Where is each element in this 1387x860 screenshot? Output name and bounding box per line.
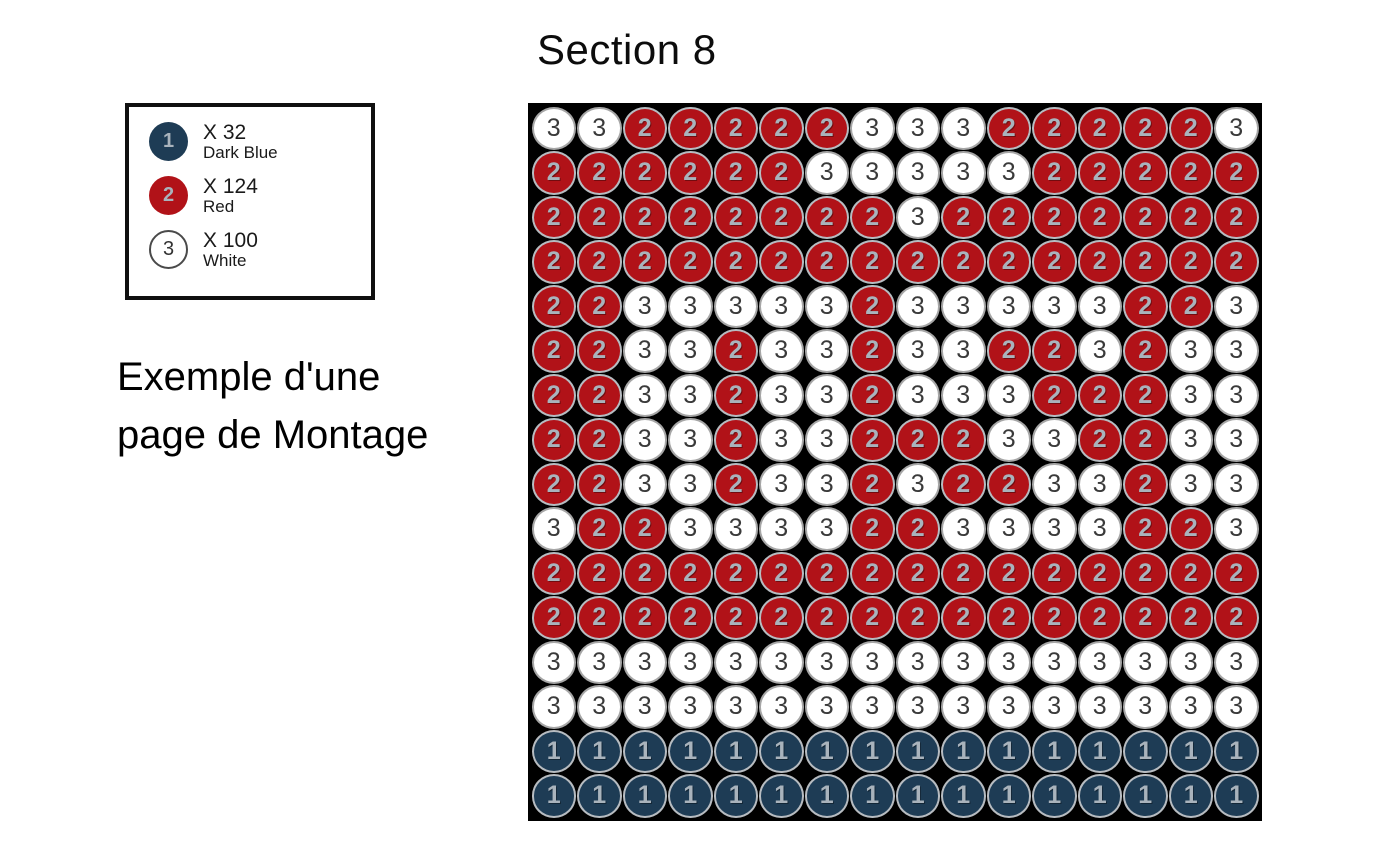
bead: 1 xyxy=(1123,730,1168,774)
bead: 2 xyxy=(850,463,895,507)
bead: 2 xyxy=(714,418,759,462)
bead: 3 xyxy=(714,641,759,685)
bead: 2 xyxy=(1032,329,1077,373)
bead: 2 xyxy=(805,596,850,640)
bead: 3 xyxy=(759,507,804,551)
bead: 1 xyxy=(1169,774,1214,818)
bead: 2 xyxy=(987,552,1032,596)
bead: 3 xyxy=(668,374,713,418)
bead: 2 xyxy=(1078,151,1123,195)
bead: 2 xyxy=(896,418,941,462)
bead: 1 xyxy=(805,730,850,774)
bead: 3 xyxy=(577,685,622,729)
bead: 2 xyxy=(532,196,577,240)
bead: 2 xyxy=(1123,285,1168,329)
bead: 2 xyxy=(577,329,622,373)
bead: 2 xyxy=(1078,196,1123,240)
bead: 3 xyxy=(850,107,895,151)
bead: 3 xyxy=(896,151,941,195)
bead: 2 xyxy=(1214,240,1259,284)
bead: 2 xyxy=(577,463,622,507)
bead: 3 xyxy=(1214,418,1259,462)
caption: Exemple d'une page de Montage xyxy=(117,348,428,464)
bead: 3 xyxy=(759,374,804,418)
bead: 3 xyxy=(805,374,850,418)
bead: 2 xyxy=(1123,507,1168,551)
bead: 1 xyxy=(1214,730,1259,774)
bead: 2 xyxy=(987,196,1032,240)
bead: 3 xyxy=(987,374,1032,418)
bead: 2 xyxy=(1169,285,1214,329)
bead: 3 xyxy=(850,685,895,729)
bead: 2 xyxy=(850,196,895,240)
bead-grid: 3322222333222223222222333332222222222222… xyxy=(528,103,1262,821)
bead: 2 xyxy=(668,151,713,195)
bead: 3 xyxy=(1214,374,1259,418)
bead: 3 xyxy=(668,507,713,551)
bead: 3 xyxy=(623,418,668,462)
bead: 2 xyxy=(805,552,850,596)
bead: 1 xyxy=(532,730,577,774)
bead: 2 xyxy=(1123,374,1168,418)
bead: 3 xyxy=(1123,685,1168,729)
legend-text: X 124 Red xyxy=(203,175,258,217)
bead: 2 xyxy=(759,240,804,284)
bead: 2 xyxy=(759,552,804,596)
bead: 1 xyxy=(714,774,759,818)
bead: 1 xyxy=(1214,774,1259,818)
bead: 2 xyxy=(1169,151,1214,195)
legend-count: X 32 xyxy=(203,121,278,144)
bead: 2 xyxy=(1078,552,1123,596)
bead: 2 xyxy=(941,240,986,284)
bead: 3 xyxy=(532,641,577,685)
bead: 3 xyxy=(714,685,759,729)
bead: 3 xyxy=(1169,329,1214,373)
page: Section 8 1 X 32 Dark Blue 2 X 124 Red 3… xyxy=(0,0,1387,860)
bead: 3 xyxy=(941,641,986,685)
bead: 2 xyxy=(850,329,895,373)
bead: 3 xyxy=(941,151,986,195)
bead: 3 xyxy=(1078,329,1123,373)
bead: 2 xyxy=(850,552,895,596)
bead: 3 xyxy=(623,685,668,729)
bead: 2 xyxy=(1032,552,1077,596)
bead: 3 xyxy=(1032,507,1077,551)
bead: 3 xyxy=(1214,463,1259,507)
bead: 2 xyxy=(668,596,713,640)
bead: 2 xyxy=(623,240,668,284)
bead: 3 xyxy=(1123,641,1168,685)
bead: 1 xyxy=(759,730,804,774)
bead: 2 xyxy=(1078,596,1123,640)
bead: 1 xyxy=(714,730,759,774)
bead: 3 xyxy=(759,463,804,507)
bead: 2 xyxy=(1214,196,1259,240)
bead: 3 xyxy=(759,418,804,462)
bead: 2 xyxy=(532,240,577,284)
bead: 3 xyxy=(1169,685,1214,729)
bead: 2 xyxy=(759,107,804,151)
bead: 2 xyxy=(1123,107,1168,151)
bead: 3 xyxy=(805,685,850,729)
legend-count: X 100 xyxy=(203,229,258,252)
bead: 3 xyxy=(1032,418,1077,462)
bead: 3 xyxy=(987,285,1032,329)
bead: 3 xyxy=(805,641,850,685)
bead: 3 xyxy=(1169,374,1214,418)
bead: 3 xyxy=(668,418,713,462)
bead: 3 xyxy=(1169,641,1214,685)
bead: 3 xyxy=(941,507,986,551)
bead: 1 xyxy=(1123,774,1168,818)
bead: 3 xyxy=(896,285,941,329)
bead: 2 xyxy=(759,196,804,240)
bead: 1 xyxy=(532,774,577,818)
bead: 2 xyxy=(577,418,622,462)
bead: 2 xyxy=(714,240,759,284)
legend-item-dark-blue: 1 X 32 Dark Blue xyxy=(149,121,371,163)
legend-item-white: 3 X 100 White xyxy=(149,229,371,271)
bead: 3 xyxy=(714,507,759,551)
bead: 2 xyxy=(1214,596,1259,640)
bead: 2 xyxy=(1123,151,1168,195)
bead: 1 xyxy=(987,774,1032,818)
bead: 2 xyxy=(759,151,804,195)
bead: 3 xyxy=(759,285,804,329)
bead: 2 xyxy=(577,552,622,596)
bead: 3 xyxy=(896,196,941,240)
bead: 3 xyxy=(759,685,804,729)
bead: 3 xyxy=(623,285,668,329)
bead: 2 xyxy=(805,107,850,151)
bead: 2 xyxy=(714,151,759,195)
bead: 1 xyxy=(577,774,622,818)
bead: 2 xyxy=(623,507,668,551)
bead: 3 xyxy=(623,641,668,685)
bead: 2 xyxy=(896,240,941,284)
bead: 3 xyxy=(577,107,622,151)
bead: 2 xyxy=(577,596,622,640)
bead: 3 xyxy=(1214,507,1259,551)
bead: 3 xyxy=(941,374,986,418)
bead: 1 xyxy=(850,774,895,818)
bead: 3 xyxy=(805,151,850,195)
bead: 2 xyxy=(850,285,895,329)
bead: 1 xyxy=(896,774,941,818)
red-bead-icon: 2 xyxy=(149,176,188,215)
bead: 2 xyxy=(714,374,759,418)
bead: 3 xyxy=(896,685,941,729)
bead: 3 xyxy=(532,507,577,551)
bead: 3 xyxy=(668,641,713,685)
bead: 2 xyxy=(577,507,622,551)
bead: 3 xyxy=(805,507,850,551)
bead: 3 xyxy=(623,374,668,418)
bead: 3 xyxy=(987,641,1032,685)
bead: 2 xyxy=(623,596,668,640)
bead: 2 xyxy=(532,329,577,373)
bead: 3 xyxy=(714,285,759,329)
bead: 3 xyxy=(532,107,577,151)
bead: 3 xyxy=(941,685,986,729)
bead: 2 xyxy=(1169,596,1214,640)
bead: 3 xyxy=(896,641,941,685)
bead: 2 xyxy=(805,196,850,240)
bead: 2 xyxy=(941,196,986,240)
legend-color-name: White xyxy=(203,252,258,271)
bead: 3 xyxy=(941,107,986,151)
bead: 2 xyxy=(941,552,986,596)
bead: 2 xyxy=(532,596,577,640)
bead: 2 xyxy=(532,374,577,418)
bead: 2 xyxy=(987,240,1032,284)
legend-color-name: Red xyxy=(203,198,258,217)
bead: 1 xyxy=(987,730,1032,774)
bead: 3 xyxy=(1032,685,1077,729)
bead: 3 xyxy=(1214,329,1259,373)
page-title: Section 8 xyxy=(537,26,717,74)
bead: 2 xyxy=(850,240,895,284)
bead: 1 xyxy=(1032,774,1077,818)
bead: 2 xyxy=(1169,240,1214,284)
bead: 3 xyxy=(1169,463,1214,507)
bead: 2 xyxy=(714,329,759,373)
bead: 3 xyxy=(1032,641,1077,685)
bead: 2 xyxy=(1032,151,1077,195)
bead: 1 xyxy=(577,730,622,774)
bead: 2 xyxy=(941,596,986,640)
bead: 2 xyxy=(1078,240,1123,284)
bead: 3 xyxy=(850,151,895,195)
bead: 2 xyxy=(850,507,895,551)
bead: 3 xyxy=(805,463,850,507)
bead: 2 xyxy=(850,596,895,640)
bead: 2 xyxy=(1032,596,1077,640)
bead: 2 xyxy=(714,552,759,596)
bead: 3 xyxy=(1214,641,1259,685)
bead: 3 xyxy=(1032,285,1077,329)
bead: 3 xyxy=(896,374,941,418)
bead: 2 xyxy=(759,596,804,640)
caption-line-2: page de Montage xyxy=(117,406,428,464)
bead: 2 xyxy=(1214,151,1259,195)
bead: 2 xyxy=(896,552,941,596)
bead: 2 xyxy=(714,196,759,240)
bead: 2 xyxy=(987,329,1032,373)
bead: 3 xyxy=(668,685,713,729)
bead: 3 xyxy=(623,329,668,373)
bead: 2 xyxy=(1032,240,1077,284)
bead: 2 xyxy=(1123,463,1168,507)
bead: 3 xyxy=(987,418,1032,462)
bead: 3 xyxy=(623,463,668,507)
bead: 2 xyxy=(1078,418,1123,462)
bead: 3 xyxy=(668,463,713,507)
bead: 3 xyxy=(1078,685,1123,729)
bead: 3 xyxy=(1214,107,1259,151)
bead: 1 xyxy=(896,730,941,774)
bead: 1 xyxy=(668,730,713,774)
bead: 2 xyxy=(987,107,1032,151)
bead: 2 xyxy=(623,107,668,151)
bead: 3 xyxy=(805,418,850,462)
legend-item-red: 2 X 124 Red xyxy=(149,175,371,217)
bead: 2 xyxy=(577,151,622,195)
bead: 2 xyxy=(532,418,577,462)
bead: 1 xyxy=(805,774,850,818)
bead: 3 xyxy=(1214,285,1259,329)
bead: 2 xyxy=(1169,552,1214,596)
bead: 2 xyxy=(941,418,986,462)
bead: 2 xyxy=(1123,329,1168,373)
bead: 1 xyxy=(941,774,986,818)
bead: 2 xyxy=(532,552,577,596)
bead: 3 xyxy=(759,329,804,373)
bead: 3 xyxy=(577,641,622,685)
bead: 2 xyxy=(1078,374,1123,418)
bead: 2 xyxy=(1123,418,1168,462)
bead: 2 xyxy=(668,107,713,151)
dark-blue-bead-icon: 1 xyxy=(149,122,188,161)
bead: 3 xyxy=(896,107,941,151)
bead: 3 xyxy=(1078,641,1123,685)
legend-box: 1 X 32 Dark Blue 2 X 124 Red 3 X 100 Whi… xyxy=(125,103,375,300)
bead: 2 xyxy=(668,196,713,240)
caption-line-1: Exemple d'une xyxy=(117,348,428,406)
bead: 2 xyxy=(1032,107,1077,151)
bead: 2 xyxy=(623,151,668,195)
bead: 2 xyxy=(941,463,986,507)
bead: 2 xyxy=(532,463,577,507)
bead: 2 xyxy=(1123,596,1168,640)
bead: 3 xyxy=(1214,685,1259,729)
bead: 2 xyxy=(668,240,713,284)
white-bead-icon: 3 xyxy=(149,230,188,269)
bead: 2 xyxy=(805,240,850,284)
bead: 2 xyxy=(532,285,577,329)
bead: 3 xyxy=(759,641,804,685)
bead: 3 xyxy=(987,685,1032,729)
bead: 3 xyxy=(850,641,895,685)
bead: 2 xyxy=(714,596,759,640)
legend-color-name: Dark Blue xyxy=(203,144,278,163)
bead: 3 xyxy=(805,329,850,373)
bead: 3 xyxy=(1169,418,1214,462)
bead: 3 xyxy=(805,285,850,329)
bead: 3 xyxy=(1078,507,1123,551)
bead: 2 xyxy=(896,596,941,640)
bead: 3 xyxy=(668,285,713,329)
bead: 1 xyxy=(850,730,895,774)
bead: 2 xyxy=(1214,552,1259,596)
bead: 2 xyxy=(577,374,622,418)
bead: 3 xyxy=(941,285,986,329)
bead: 1 xyxy=(668,774,713,818)
bead: 2 xyxy=(1123,240,1168,284)
bead: 2 xyxy=(850,374,895,418)
bead: 1 xyxy=(1169,730,1214,774)
bead: 2 xyxy=(987,463,1032,507)
bead: 2 xyxy=(577,285,622,329)
legend-count: X 124 xyxy=(203,175,258,198)
bead: 2 xyxy=(1078,107,1123,151)
bead: 1 xyxy=(1078,774,1123,818)
bead: 2 xyxy=(1169,196,1214,240)
bead: 3 xyxy=(1078,285,1123,329)
bead: 3 xyxy=(896,463,941,507)
bead: 2 xyxy=(714,463,759,507)
bead: 3 xyxy=(668,329,713,373)
bead: 3 xyxy=(987,151,1032,195)
bead: 1 xyxy=(1078,730,1123,774)
legend-text: X 100 White xyxy=(203,229,258,271)
bead: 2 xyxy=(577,196,622,240)
bead: 3 xyxy=(941,329,986,373)
legend-text: X 32 Dark Blue xyxy=(203,121,278,163)
bead: 3 xyxy=(1078,463,1123,507)
bead: 2 xyxy=(577,240,622,284)
bead: 1 xyxy=(623,730,668,774)
bead: 2 xyxy=(896,507,941,551)
bead: 3 xyxy=(896,329,941,373)
bead: 1 xyxy=(1032,730,1077,774)
bead: 3 xyxy=(1032,463,1077,507)
bead: 1 xyxy=(941,730,986,774)
bead: 3 xyxy=(532,685,577,729)
bead: 2 xyxy=(668,552,713,596)
bead: 2 xyxy=(1169,507,1214,551)
bead: 2 xyxy=(1032,374,1077,418)
bead: 1 xyxy=(623,774,668,818)
bead: 2 xyxy=(1032,196,1077,240)
bead: 3 xyxy=(987,507,1032,551)
bead: 2 xyxy=(850,418,895,462)
bead: 2 xyxy=(623,552,668,596)
bead: 2 xyxy=(1169,107,1214,151)
bead: 2 xyxy=(1123,552,1168,596)
bead: 2 xyxy=(987,596,1032,640)
bead: 2 xyxy=(714,107,759,151)
bead: 1 xyxy=(759,774,804,818)
bead: 2 xyxy=(623,196,668,240)
bead: 2 xyxy=(1123,196,1168,240)
bead: 2 xyxy=(532,151,577,195)
